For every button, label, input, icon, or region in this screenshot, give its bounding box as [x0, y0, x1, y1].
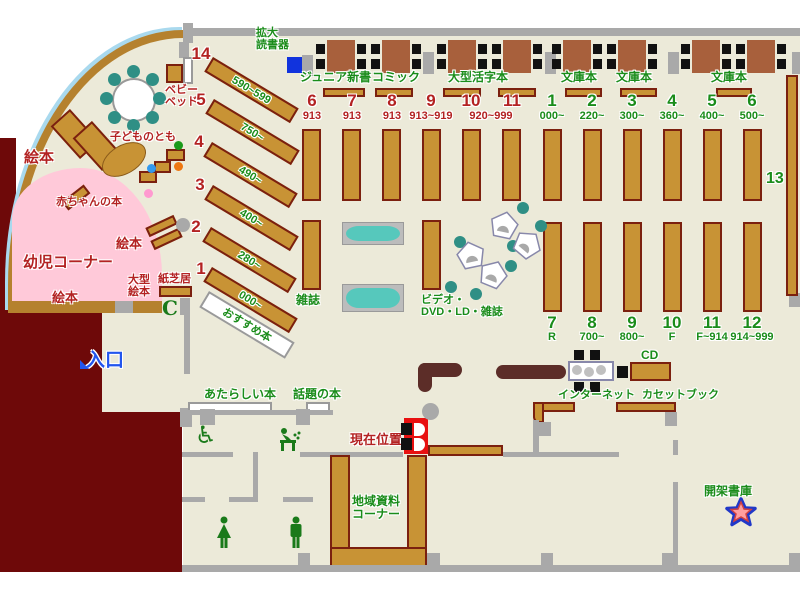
- shelf-number: 9: [610, 314, 654, 331]
- shelf-number-13: 13: [766, 170, 784, 188]
- bottom-wall: [182, 565, 800, 572]
- blue-marker-dot: [147, 164, 156, 173]
- magazines-label: 雑誌: [296, 294, 320, 307]
- picture-books-label-bottom: 絵本: [52, 287, 78, 306]
- stool: [127, 65, 140, 78]
- shelf-number: 2: [570, 92, 614, 109]
- topical-books-label: 話題の本: [293, 388, 341, 401]
- bookshelf: [703, 129, 722, 201]
- shelf-number: 9: [409, 92, 453, 109]
- section-label-bunko: 文庫本: [711, 71, 747, 84]
- shelf-number: 7: [530, 314, 574, 331]
- bookshelf: [743, 222, 762, 312]
- public-phone-icon: C: [162, 296, 178, 320]
- shelf-number: 6: [730, 92, 774, 109]
- open-stacks-star-icon: [725, 497, 757, 527]
- shelf-range: 913~919: [401, 110, 461, 122]
- magnifier-reader-label: 拡大読書器: [256, 28, 289, 51]
- children-area-gate: [115, 301, 133, 313]
- shelf-number: 7: [330, 92, 374, 109]
- shelf-range: 700~: [570, 331, 614, 343]
- wall: [503, 452, 533, 457]
- cd-shelf: [630, 362, 671, 381]
- shelf-number: 11: [490, 92, 534, 109]
- curved-bench: [342, 284, 404, 312]
- pillar: [541, 553, 553, 566]
- bookshelf: [502, 129, 521, 201]
- shelf-number: 12: [730, 314, 774, 331]
- wall: [300, 452, 403, 457]
- shelf-range: 220~: [570, 110, 614, 122]
- kodomo-no-tomo-label: 子どものとも: [110, 132, 176, 144]
- bookshelf: [583, 129, 602, 201]
- bookshelf: [583, 222, 602, 312]
- entrance-arrow-icon: [80, 360, 89, 369]
- reading-table: [618, 40, 646, 73]
- reading-table: [448, 40, 476, 73]
- stool: [146, 73, 159, 86]
- bookshelf: [663, 129, 682, 201]
- pillar: [296, 409, 310, 425]
- shelf-range: 500~: [730, 110, 774, 122]
- reading-table: [503, 40, 531, 73]
- pillar: [537, 422, 551, 436]
- baby-bed-shelf: [166, 64, 183, 83]
- reading-table: [747, 40, 775, 73]
- toddler-corner-label: 幼児コーナー: [23, 251, 113, 272]
- shelf-number: 10: [449, 92, 493, 109]
- stool: [100, 92, 113, 105]
- man-icon: [285, 516, 307, 550]
- shelf-number: 4: [650, 92, 694, 109]
- stool: [108, 73, 121, 86]
- cassette-label: カセットブック: [642, 390, 719, 402]
- shelf-number: 3: [610, 92, 654, 109]
- internet-label: インターネット: [558, 390, 635, 402]
- reading-table: [382, 40, 410, 73]
- local-materials-shelf: [330, 547, 427, 567]
- section-label-bunko: 文庫本: [561, 71, 597, 84]
- bookshelf: [543, 129, 562, 201]
- reading-table: [692, 40, 720, 73]
- wall: [182, 452, 233, 457]
- shelf-range: 914~999: [718, 331, 786, 343]
- pillar: [427, 553, 440, 566]
- section-label-comic: コミック: [372, 71, 420, 84]
- bookshelf: [623, 129, 642, 201]
- bookshelf: [703, 222, 722, 312]
- baby-books-label: 赤ちゃんの本: [56, 197, 122, 209]
- pillar: [662, 553, 675, 566]
- pillar: [665, 412, 677, 426]
- bookshelf: [302, 129, 321, 201]
- bookshelf: [663, 222, 682, 312]
- cd-label: CD: [641, 349, 658, 362]
- shelf-range-shared: 920~999: [456, 110, 526, 122]
- pillar: [422, 403, 439, 420]
- service-counter: [418, 363, 432, 392]
- wheelchair-icon: ♿: [195, 421, 217, 450]
- shelf-range: 000~: [530, 110, 574, 122]
- bookshelf: [623, 222, 642, 312]
- orange-marker-dot: [174, 162, 183, 171]
- shelf-number: 5: [690, 92, 734, 109]
- shelf-range: 913: [330, 110, 374, 122]
- bookshelf: [382, 129, 401, 201]
- outside-area-bottom: [102, 412, 182, 572]
- video-booths: [438, 198, 550, 304]
- shelf-range: 300~: [610, 110, 654, 122]
- reading-table: [563, 40, 591, 73]
- large-picture-book-label: 大型絵本: [128, 275, 150, 298]
- shelf: [428, 445, 503, 456]
- new-books-label: あたらしい本: [204, 388, 276, 401]
- wall: [253, 452, 258, 500]
- bookshelf-13: [786, 75, 798, 296]
- pillar: [668, 52, 679, 74]
- section-label-junior: ジュニア新書: [300, 71, 371, 84]
- shelf-range: 400~: [690, 110, 734, 122]
- shelf-number: 8: [570, 314, 614, 331]
- shelf-range: R: [530, 331, 574, 343]
- step-shelf: [139, 171, 157, 183]
- baby-change-icon: [277, 427, 303, 451]
- stool: [108, 111, 121, 124]
- shelf-number: 1: [530, 92, 574, 109]
- picture-books-label-left: 絵本: [24, 146, 54, 167]
- wall: [283, 497, 313, 502]
- reading-table: [327, 40, 355, 73]
- section-label-bunko: 文庫本: [616, 71, 652, 84]
- picture-books-label-mid: 絵本: [116, 233, 142, 252]
- bookshelf: [462, 129, 481, 201]
- wall: [182, 497, 205, 502]
- wall: [673, 440, 678, 455]
- pillar: [789, 553, 800, 566]
- wall: [229, 497, 258, 502]
- shelf-range: 360~: [650, 110, 694, 122]
- pillar: [792, 52, 800, 74]
- library-floor-map: ベビーベッド 子どものとも 絵本 赤ちゃんの本 幼児コーナー 絵本 絵本 大型絵…: [0, 0, 800, 600]
- shelf-range: 800~: [610, 331, 654, 343]
- shelf-number: 8: [370, 92, 414, 109]
- magazine-shelf: [302, 220, 321, 290]
- section-label-large-print: 大型活字本: [448, 71, 508, 84]
- bookshelf: [422, 129, 441, 201]
- curved-bench: [342, 222, 404, 245]
- shelf-number: 11: [690, 314, 734, 331]
- wall: [539, 452, 619, 457]
- pink-marker-dot: [144, 189, 153, 198]
- corridor-wall: [184, 308, 190, 374]
- bookshelf: [342, 129, 361, 201]
- entrance-label: 入口: [86, 345, 124, 372]
- current-location-label: 現在位置: [350, 429, 402, 448]
- children-area-wall: [8, 301, 162, 313]
- step-shelf: [166, 149, 185, 161]
- stool: [146, 111, 159, 124]
- shelf-number: 10: [650, 314, 694, 331]
- local-materials-label: 地域資料コーナー: [352, 495, 400, 521]
- service-counter: [496, 365, 566, 379]
- cassette-shelf: [616, 402, 676, 412]
- woman-icon: [213, 516, 235, 550]
- bookshelf: [743, 129, 762, 201]
- pillar: [423, 52, 434, 74]
